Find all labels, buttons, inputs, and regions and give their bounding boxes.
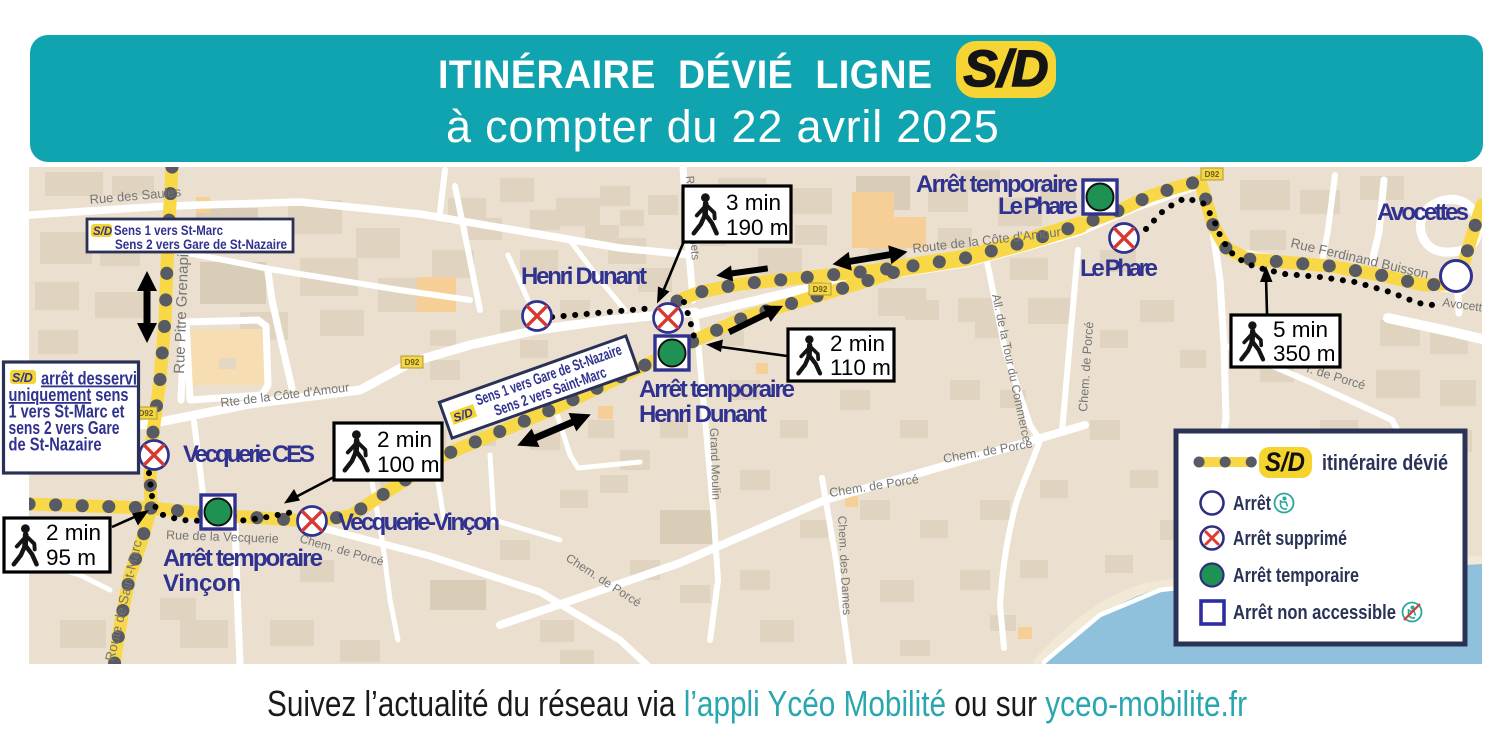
svg-text:2 min: 2 min: [46, 520, 101, 545]
svg-text:Arrêt: Arrêt: [1233, 493, 1271, 515]
svg-text:D92: D92: [405, 358, 420, 367]
svg-text:Le Phare: Le Phare: [1080, 255, 1158, 282]
svg-text:3 min: 3 min: [726, 190, 781, 215]
svg-text:Arrêt supprimé: Arrêt supprimé: [1233, 528, 1347, 550]
svg-text:190 m: 190 m: [726, 215, 789, 240]
svg-text:de St-Nazaire: de St-Nazaire: [9, 435, 102, 455]
svg-text:5 min: 5 min: [1273, 317, 1328, 342]
svg-text:S/D: S/D: [1265, 447, 1305, 477]
svg-text:Sens 2 vers Gare de St-Nazaire: Sens 2 vers Gare de St-Nazaire: [115, 237, 287, 252]
svg-text:Arrêt temporaire: Arrêt temporaire: [639, 376, 795, 403]
svg-text:Arrêt temporaire: Arrêt temporaire: [1233, 565, 1359, 587]
svg-text:Grand Moulin: Grand Moulin: [707, 428, 724, 500]
svg-text:S/D: S/D: [93, 226, 112, 238]
svg-text:Vecquerie-Vinçon: Vecquerie-Vinçon: [338, 509, 500, 536]
svg-text:D92: D92: [1205, 170, 1220, 179]
svg-text:2 min: 2 min: [830, 331, 885, 356]
svg-text:95 m: 95 m: [46, 545, 96, 570]
svg-text:D92: D92: [139, 409, 154, 418]
svg-text:itinéraire dévié: itinéraire dévié: [1322, 450, 1448, 475]
svg-text:S/D: S/D: [12, 371, 33, 385]
svg-text:Henri Dunant: Henri Dunant: [521, 263, 647, 290]
svg-text:Vinçon: Vinçon: [163, 570, 241, 597]
svg-text:Avocettes: Avocettes: [1377, 199, 1469, 226]
svg-text:2 min: 2 min: [377, 427, 432, 452]
svg-text:Henri Dunant: Henri Dunant: [639, 401, 767, 428]
svg-text:110 m: 110 m: [830, 355, 891, 380]
svg-text:D92: D92: [813, 285, 828, 294]
svg-text:Le Phare: Le Phare: [998, 193, 1078, 220]
svg-text:350 m: 350 m: [1273, 341, 1336, 366]
svg-text:Vecquerie CES: Vecquerie CES: [183, 441, 315, 468]
svg-text:Arrêt non accessible: Arrêt non accessible: [1233, 602, 1396, 624]
svg-text:100 m: 100 m: [377, 452, 440, 477]
svg-text:Arrêt temporaire: Arrêt temporaire: [163, 545, 323, 572]
svg-text:Sens 1 vers St-Marc: Sens 1 vers St-Marc: [114, 223, 223, 238]
